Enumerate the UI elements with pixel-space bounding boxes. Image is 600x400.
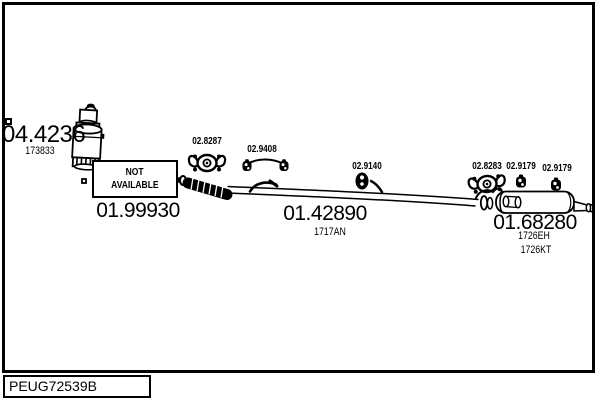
part-number-centre-pipe: 01.42890 [273,202,377,225]
not-available-line2: AVAILABLE [111,179,158,192]
part-number-hanger-rear-2: 02.9179 [539,163,575,175]
part-number-catalytic-converter: 01.99930 [86,199,190,222]
rear-silencer-drawing [496,192,594,214]
clamp-icon-rear [468,174,506,195]
part-ref-centre-pipe: 1717AN [305,226,355,238]
rubber-hanger-centre-icon [356,173,369,190]
exhaust-parts-diagram: 04.4236 173833 NOT AVAILABLE 01.99930 02… [0,0,600,400]
part-number-hanger-centre: 02.9140 [348,161,385,173]
marker-square-converter [82,179,86,183]
mounting-kit-icon [243,159,289,171]
part-number-mounting-kit: 02.9408 [243,144,280,156]
part-ref-front-pipe: 173833 [15,145,65,157]
part-number-hanger-rear-1: 02.9179 [503,161,539,173]
part-number-clamp-rear: 02.8283 [468,161,505,173]
not-available-box: NOT AVAILABLE [92,160,178,198]
part-number-clamp-front: 02.8287 [188,136,225,148]
rubber-hanger-rear-2-icon [551,178,561,191]
part-ref-rear-silencer-2: 1726KT [511,244,561,256]
part-ref-rear-silencer-1: 1726EH [509,230,559,242]
not-available-line1: NOT [126,166,144,179]
diagram-code: PEUG72539B [9,378,97,394]
diagram-code-box: PEUG72539B [3,375,151,398]
clamp-icon-front [189,155,225,172]
flex-pipe-drawing [178,176,228,197]
rubber-hanger-rear-1-icon [516,175,526,188]
